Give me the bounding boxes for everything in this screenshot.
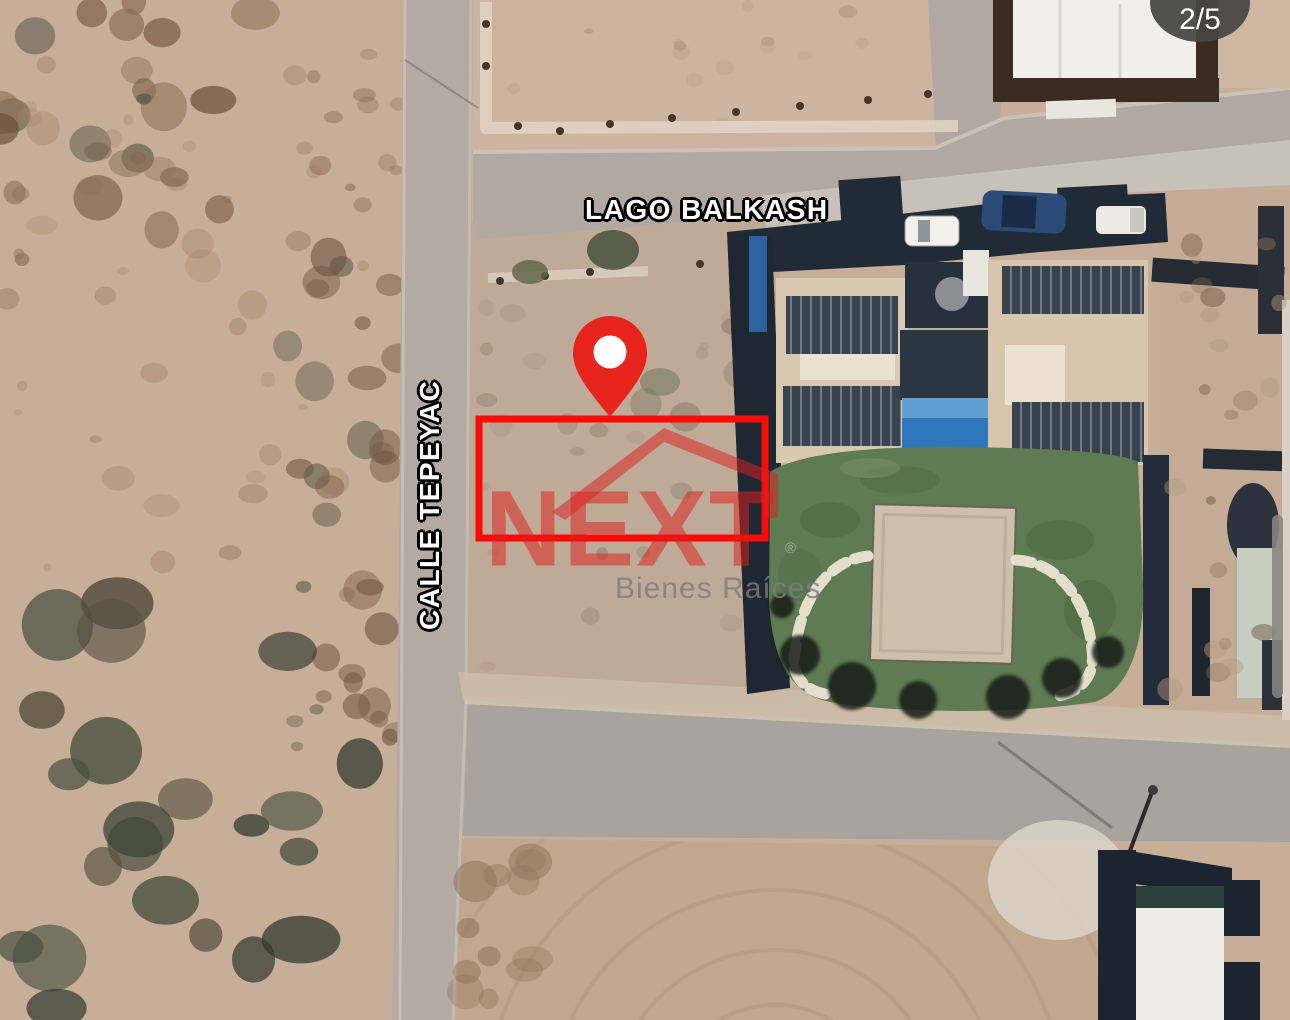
scrub-blob xyxy=(479,662,495,672)
scrub-blob xyxy=(140,363,168,383)
scrub-blob xyxy=(273,331,302,362)
scrub-blob xyxy=(144,18,181,47)
scrub-blob xyxy=(223,196,232,204)
scrub-blob xyxy=(1271,295,1286,311)
scrub-blob xyxy=(136,94,152,105)
scrub-blob xyxy=(117,267,129,275)
scrub-blob xyxy=(716,60,734,75)
scrub-blob xyxy=(166,178,188,191)
scrub-blob xyxy=(507,83,520,94)
scrub-blob xyxy=(286,715,303,727)
scrub-blob xyxy=(315,475,345,499)
scrub-blob xyxy=(376,274,404,296)
scrub-blob xyxy=(102,466,135,491)
scrub-blob xyxy=(1164,479,1186,497)
street-label-lago-balkash: LAGO BALKASH xyxy=(585,194,829,226)
scrub-blob xyxy=(123,115,134,126)
scrub-blob xyxy=(280,838,318,866)
scrub-blob xyxy=(670,483,692,500)
scrub-blob xyxy=(358,688,391,724)
scrub-blob xyxy=(1219,638,1231,650)
scrub-blob xyxy=(190,86,236,114)
scrub-blob xyxy=(742,0,754,12)
scrub-blob xyxy=(37,56,56,73)
solar-panels xyxy=(786,296,898,354)
scrub-blob xyxy=(283,65,306,85)
scrub-blob xyxy=(457,918,480,938)
scrub-blob xyxy=(13,249,24,260)
scrub-blob xyxy=(480,343,493,356)
scrub-blob xyxy=(590,423,609,437)
scrub-blob xyxy=(103,129,122,148)
scrub-blob xyxy=(1199,384,1210,395)
scrub-blob xyxy=(1219,658,1244,675)
scrub-blob xyxy=(219,545,242,560)
scrub-blob xyxy=(229,318,246,336)
street-label-calle-tepeyac: CALLE TEPEYAC xyxy=(414,390,446,630)
scrub-blob xyxy=(357,97,379,114)
scrub-blob xyxy=(286,231,311,251)
scrub-blob xyxy=(312,644,340,672)
scrub-blob xyxy=(355,316,371,330)
scrub-blob xyxy=(77,177,102,195)
scrub-blob xyxy=(478,946,501,966)
scrub-blob xyxy=(296,581,312,593)
scrub-blob xyxy=(338,664,365,684)
scrub-blob xyxy=(1180,291,1194,303)
scrub-blob xyxy=(673,39,681,46)
backyard-lawn xyxy=(769,447,1143,719)
scrub-blob xyxy=(1210,339,1229,352)
scrub-blob xyxy=(500,304,526,322)
scrub-blob xyxy=(143,157,176,181)
scrub-blob xyxy=(238,290,267,320)
scrub-blob xyxy=(798,51,812,60)
scrub-blob xyxy=(310,704,324,714)
scrub-blob xyxy=(1191,277,1212,293)
patio-pavilion xyxy=(870,504,1016,664)
scrollbar-thumb[interactable] xyxy=(1272,515,1283,698)
scrub-blob xyxy=(686,73,703,88)
scrub-blob xyxy=(182,229,214,259)
scrub-blob xyxy=(1157,677,1182,701)
scrub-blob xyxy=(84,847,122,886)
scrub-blob xyxy=(259,444,282,465)
scrub-blob xyxy=(311,238,347,277)
scrub-blob xyxy=(43,563,51,571)
scrub-blob xyxy=(261,791,323,830)
scrub-blob xyxy=(1224,410,1238,420)
scrub-blob xyxy=(316,690,332,703)
scrub-blob xyxy=(144,494,180,517)
scrub-blob xyxy=(1233,391,1258,411)
scrub-blob xyxy=(508,865,540,895)
scrub-blob xyxy=(345,184,356,192)
scrub-blob xyxy=(1181,234,1203,257)
scrub-blob xyxy=(581,608,600,625)
scrub-blob xyxy=(109,8,144,40)
scrub-blob xyxy=(291,742,304,751)
scrub-blob xyxy=(447,974,484,1009)
scrub-blob xyxy=(189,918,222,951)
scrub-blob xyxy=(12,186,29,201)
scrub-blob xyxy=(77,599,146,662)
scrub-blob xyxy=(26,216,57,235)
scrub-blob xyxy=(570,447,584,456)
scrub-blob xyxy=(13,925,87,992)
scrub-blob xyxy=(1206,496,1216,505)
scrub-blob xyxy=(699,343,710,351)
scrub-blob xyxy=(1257,238,1276,251)
scrub-blob xyxy=(855,38,869,49)
map-graphics xyxy=(0,0,1290,1020)
scrub-blob xyxy=(506,958,543,982)
scrub-blob xyxy=(348,366,387,390)
scrub-blob xyxy=(478,299,494,316)
scrub-blob xyxy=(298,404,308,410)
scrub-blob xyxy=(390,165,403,175)
photo-counter-text: 2/5 xyxy=(1179,5,1221,42)
scrub-blob xyxy=(365,612,399,645)
scrub-blob xyxy=(232,936,275,982)
scrub-blob xyxy=(720,615,743,632)
scrub-blob xyxy=(360,49,378,60)
scrub-blob xyxy=(132,876,199,925)
scrub-blob xyxy=(636,546,650,558)
scrub-blob xyxy=(297,142,313,155)
scrub-blob xyxy=(523,353,546,369)
scrub-blob xyxy=(258,632,316,671)
scrub-blob xyxy=(627,431,645,444)
solar-panels xyxy=(783,386,901,446)
scrub-blob xyxy=(183,141,196,152)
scrub-blob xyxy=(312,503,341,527)
satellite-photo[interactable]: LAGO BALKASH CALLE TEPEYAC NEXT ® Bienes… xyxy=(0,0,1290,1020)
scrub-blob xyxy=(343,570,382,609)
scrub-blob xyxy=(370,451,402,483)
scrub-blob xyxy=(19,691,65,729)
white-car xyxy=(905,216,959,246)
blue-feature xyxy=(749,236,767,332)
scrub-blob xyxy=(15,17,55,54)
scrub-blob xyxy=(103,801,174,857)
scrub-blob xyxy=(476,393,497,406)
scrub-blob xyxy=(487,549,498,556)
scrub-blob xyxy=(17,381,27,392)
blue-car xyxy=(981,190,1067,234)
scrub-blob xyxy=(70,717,142,785)
scrub-blob xyxy=(89,435,101,443)
scrub-blob xyxy=(295,361,334,401)
scrub-blob xyxy=(261,372,275,387)
scrub-blob xyxy=(1260,378,1280,398)
scrub-blob xyxy=(150,551,175,574)
solar-panels xyxy=(1002,266,1144,314)
scrub-blob xyxy=(357,260,369,271)
scrub-blob xyxy=(354,197,372,212)
scrub-blob xyxy=(141,82,187,131)
scrub-blob xyxy=(337,738,383,789)
scrub-blob xyxy=(454,861,497,903)
scrub-blob xyxy=(14,409,22,416)
scrub-blob xyxy=(307,70,320,83)
scrub-blob xyxy=(760,41,775,54)
scrub-blob xyxy=(145,211,179,248)
scrub-blob xyxy=(1200,308,1219,322)
scrub-blob xyxy=(95,287,117,305)
scrub-blob xyxy=(584,28,594,34)
scrub-blob xyxy=(23,101,37,115)
white-car xyxy=(1096,206,1146,234)
scrub-blob xyxy=(238,484,268,503)
scrub-blob xyxy=(596,547,608,560)
scrub-blob xyxy=(309,156,331,176)
scrub-blob xyxy=(109,150,148,177)
scrub-blob xyxy=(246,471,266,483)
scrub-blob xyxy=(1210,562,1227,578)
scrub-blob xyxy=(324,111,343,123)
scrub-blob xyxy=(839,5,858,18)
